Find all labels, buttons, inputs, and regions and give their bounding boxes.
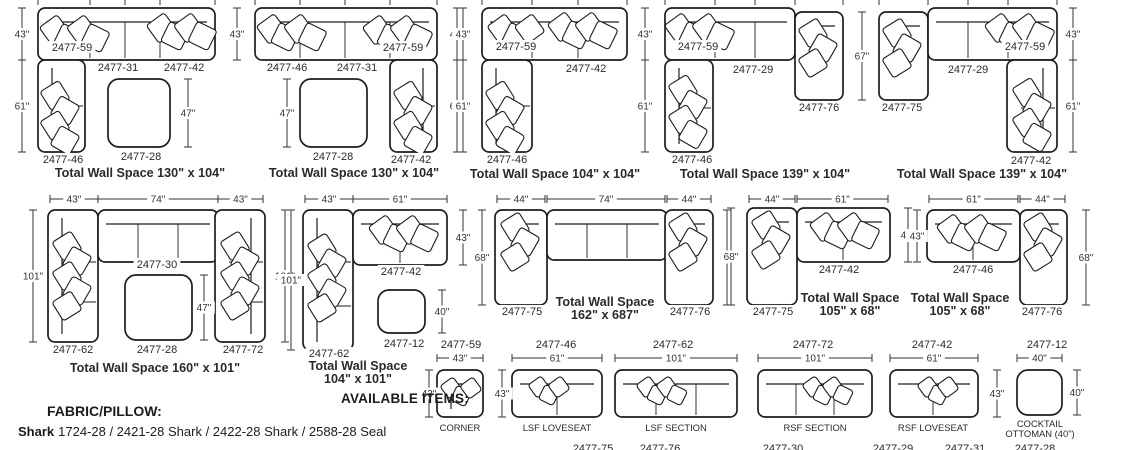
dimension: 43" (226, 8, 248, 60)
dimension: 68" (720, 208, 742, 305)
config-b3-wallspace-162x687: 44"74"44"68"68"2477-752477-76Total Wall … (471, 193, 738, 322)
wall-space-title: Total Wall Space 139" x 104" (680, 167, 850, 181)
part-number: 2477-42 (391, 154, 431, 166)
dimension-value: 74" (599, 195, 614, 206)
part-number: 2477-76 (640, 443, 680, 450)
ottoman-piece (1017, 370, 1062, 415)
dimension-value: 74" (151, 195, 166, 206)
part-number: 2477-59 (678, 41, 718, 53)
part-number: 2477-42 (381, 266, 421, 278)
dimension-value: 101" (281, 276, 302, 287)
wall-space-title: Total Wall Space 130" x 104" (269, 166, 439, 180)
part-number: 2477-42 (819, 264, 859, 276)
dimension-value: 61" (393, 195, 408, 206)
dimension: 43" (452, 8, 474, 60)
part-number: 2477-42 (164, 62, 204, 74)
part-number: 2477-59 (52, 42, 92, 54)
dimension-value: 101" (23, 272, 44, 283)
dimension: 61" (452, 60, 474, 152)
part-number: 2477-46 (536, 339, 576, 351)
dimension-value: 61" (835, 195, 850, 206)
part-number: 2477-76 (799, 102, 839, 114)
part-number: 2477-31 (337, 62, 377, 74)
dimension: 68" (471, 210, 493, 305)
config-t5-wallspace-139x104: 43"61"2477-752477-292477-592477-42Total … (879, 8, 1084, 181)
part-number: 2477-31 (945, 443, 985, 450)
dimension-value: 43" (453, 354, 468, 365)
ottoman-piece (300, 79, 367, 147)
wall-space-title: 105" x 68" (930, 304, 991, 318)
wall-space-title: Total Wall Space 160" x 101" (70, 361, 240, 375)
dimension-value: 43" (1066, 30, 1081, 41)
part-number: 2477-31 (98, 62, 138, 74)
item-name: RSF LOVESEAT (898, 422, 968, 433)
dimension-value: 43" (456, 30, 471, 41)
part-number: 2477-28 (1015, 443, 1055, 450)
part-number: 2477-30 (763, 443, 803, 450)
dimension-value: 43" (990, 389, 1005, 400)
part-number: 2477-76 (670, 306, 710, 318)
dimension-value: 47" (280, 109, 295, 120)
part-number: 2477-42 (912, 339, 952, 351)
dimension: 43" (437, 352, 483, 365)
dimension: 61" (1062, 60, 1084, 152)
part-number: 2477-46 (487, 154, 527, 166)
part-number: 2477-29 (948, 64, 988, 76)
dimension: 43" (906, 210, 928, 262)
dimension-value: 68" (724, 252, 739, 263)
part-number: 2477-59 (383, 42, 423, 54)
wall-space-title: Total Wall Space (556, 295, 655, 309)
part-number: 2477-28 (313, 151, 353, 163)
dimension: 43" (305, 193, 353, 206)
item-name: OTTOMAN (40") (1005, 428, 1074, 439)
dimension: 44" (1020, 193, 1065, 206)
sectional-configurations-sheet: 43"61"47"2477-592477-312477-422477-46247… (0, 0, 1140, 450)
dimension-value: 43" (456, 233, 471, 244)
dimension-value: 43" (230, 30, 245, 41)
part-number: 2477-46 (267, 62, 307, 74)
config-b1-wallspace-160x101: 43"74"43"101"101"47"2477-302477-622477-2… (19, 193, 299, 375)
dimension-value: 43" (233, 195, 248, 206)
dimension-value: 43" (495, 389, 510, 400)
wall-space-title: Total Wall Space 139" x 104" (897, 167, 1067, 181)
part-number: 2477-12 (384, 338, 424, 350)
part-number: 2477-75 (882, 102, 922, 114)
available-items-header: AVAILABLE ITEMS: (341, 391, 469, 406)
dimension-value: 44" (682, 195, 697, 206)
dimension-value: 61" (927, 354, 942, 365)
dimension-value: 101" (805, 354, 826, 365)
dimension-value: 61" (966, 195, 981, 206)
ottoman-piece (125, 275, 192, 340)
ottoman-piece (378, 290, 425, 333)
dimension-value: 61" (1066, 102, 1081, 113)
item-name: RSF SECTION (783, 422, 846, 433)
part-number: 2477-75 (753, 306, 793, 318)
fabric-brand-label: Shark (18, 424, 54, 439)
dimension: 40" (431, 290, 453, 333)
dimension: 68" (1075, 210, 1097, 305)
dimension-value: 40" (1070, 388, 1085, 399)
fabric-pillow-line: Shark1724-28 / 2421-28 Shark / 2422-28 S… (18, 424, 386, 439)
wall-space-title: Total Wall Space (911, 291, 1010, 305)
item-name: LSF SECTION (645, 422, 706, 433)
part-number: 2477-75 (573, 443, 613, 450)
dimension: 43" (1062, 8, 1084, 60)
part-number: 2477-28 (121, 151, 161, 163)
dimension-value: 67" (855, 52, 870, 63)
dimension: 47" (193, 275, 215, 340)
ottoman-piece (108, 79, 170, 147)
config-b4-wallspace-105x68: 44"61"68"43"2477-752477-42Total Wall Spa… (720, 193, 919, 318)
config-item-rsf-section: 101"2477-72RSF SECTION (758, 338, 872, 433)
dimension: 61" (890, 352, 978, 365)
part-number: 2477-59 (441, 339, 481, 351)
dimension-value: 68" (1079, 253, 1094, 264)
config-t1-wallspace-130x104: 43"61"47"2477-592477-312477-422477-46247… (11, 8, 225, 180)
part-number: 2477-59 (1005, 41, 1045, 53)
dimension-value: 61" (550, 354, 565, 365)
dimension-value: 47" (197, 303, 212, 314)
wall-space-title: Total Wall Space 130" x 104" (55, 166, 225, 180)
dimension-value: 40" (435, 307, 450, 318)
item-name: CORNER (440, 422, 481, 433)
dimension-value: 61" (638, 102, 653, 113)
part-number: 2477-30 (137, 259, 177, 271)
item-name: LSF LOVESEAT (523, 422, 592, 433)
config-item-lsf-loveseat: 61"43"2477-46LSF LOVESEAT (491, 338, 602, 433)
fabric-codes-label: 1724-28 / 2421-28 Shark / 2422-28 Shark … (58, 424, 386, 439)
part-number: 2477-59 (496, 41, 536, 53)
dimension-value: 40" (1032, 354, 1047, 365)
part-number: 2477-46 (43, 154, 83, 166)
dimension: 44" (667, 193, 711, 206)
part-number: 2477-62 (653, 339, 693, 351)
wall-space-title: 105" x 68" (820, 304, 881, 318)
part-number: 2477-12 (1027, 339, 1067, 351)
dimension-value: 101" (666, 354, 687, 365)
dimension: 74" (547, 193, 665, 206)
dimension: 74" (98, 193, 218, 206)
part-number: 2477-46 (953, 264, 993, 276)
part-number: 2477-42 (566, 63, 606, 75)
dimension-value: 61" (15, 102, 30, 113)
part-number: 2477-72 (793, 339, 833, 351)
dimension: 43" (218, 193, 263, 206)
config-b2-wallspace-104x101: 43"61"101"43"40"2477-422477-622477-12Tot… (277, 193, 474, 386)
config-t2-wallspace-130x104: 43"47"43"61"2477-462477-312477-592477-28… (226, 8, 468, 180)
part-number: 2477-42 (1011, 155, 1051, 167)
part-number: 2477-72 (223, 344, 263, 356)
dimension-value: 43" (322, 195, 337, 206)
dimension: 101" (615, 352, 737, 365)
config-t3-wallspace-104x104: 43"61"43"61"2477-592477-422477-46Total W… (452, 8, 656, 181)
dimension: 67" (851, 12, 873, 100)
top-edge-tick-remnants (38, 0, 1057, 5)
dimension: 40" (1066, 370, 1088, 415)
config-item-rsf-loveseat: 61"43"2477-42RSF LOVESEAT (890, 338, 1008, 433)
dimension-value: 47" (181, 109, 196, 120)
wall-space-title: 162" x 687" (571, 308, 639, 322)
floorplan-canvas: 43"61"47"2477-592477-312477-422477-46247… (0, 0, 1140, 450)
dimension: 61" (11, 60, 33, 152)
wall-space-title: Total Wall Space (309, 359, 408, 373)
dimension: 43" (452, 210, 474, 265)
dimension: 43" (634, 8, 656, 60)
dimension: 40" (1017, 352, 1062, 365)
fabric-pillow-header: FABRIC/PILLOW: (47, 403, 162, 419)
config-b5-wallspace-105x68: 61"44"43"68"2477-462477-76Total Wall Spa… (906, 193, 1097, 318)
dimension: 43" (50, 193, 98, 206)
dimension: 43" (11, 8, 33, 60)
part-number: 2477-29 (733, 64, 773, 76)
config-row2-part-numbers: 2477-752477-762477-302477-292477-312477-… (570, 442, 1059, 450)
dimension-value: 61" (456, 102, 471, 113)
part-number: 2477-29 (873, 443, 913, 450)
part-number: 2477-75 (502, 306, 542, 318)
dimension: 44" (497, 193, 545, 206)
dimension: 61" (353, 193, 447, 206)
dimension-value: 44" (1035, 195, 1050, 206)
part-number: 2477-28 (137, 344, 177, 356)
wall-space-title: Total Wall Space 104" x 104" (470, 167, 640, 181)
part-number: 2477-76 (1022, 306, 1062, 318)
dimension: 61" (512, 352, 602, 365)
wall-space-title: Total Wall Space (801, 291, 900, 305)
dimension-value: 43" (638, 30, 653, 41)
dimension: 61" (797, 193, 888, 206)
wall-space-title: 104" x 101" (324, 372, 392, 386)
dimension-value: 68" (475, 253, 490, 264)
dimension: 101" (19, 210, 47, 342)
dimension: 43" (986, 370, 1008, 417)
config-item-corner: 43"43"2477-59CORNER (418, 338, 484, 433)
dimension: 61" (929, 193, 1018, 206)
dimension: 101" (277, 210, 305, 350)
config-t4-wallspace-139x104: 67"2477-592477-292477-762477-46Total Wal… (664, 8, 873, 181)
dimension-value: 43" (67, 195, 82, 206)
part-number: 2477-46 (672, 154, 712, 166)
config-item-lsf-section: 101"2477-62LSF SECTION (615, 338, 737, 433)
dimension: 101" (758, 352, 872, 365)
config-item-cocktail-ottoman: 40"40"2477-12COCKTAILOTTOMAN (40") (1005, 338, 1087, 439)
sofa-piece (547, 210, 667, 260)
sofa-piece (98, 210, 218, 262)
dimension-value: 44" (765, 195, 780, 206)
dimension: 47" (177, 79, 199, 147)
part-number: 2477-62 (53, 344, 93, 356)
dimension: 43" (491, 370, 513, 417)
dimension-value: 44" (514, 195, 529, 206)
dimension: 47" (276, 79, 298, 147)
dimension-value: 43" (910, 232, 925, 243)
dimension-value: 43" (15, 30, 30, 41)
dimension: 44" (749, 193, 795, 206)
dimension: 61" (634, 60, 656, 152)
